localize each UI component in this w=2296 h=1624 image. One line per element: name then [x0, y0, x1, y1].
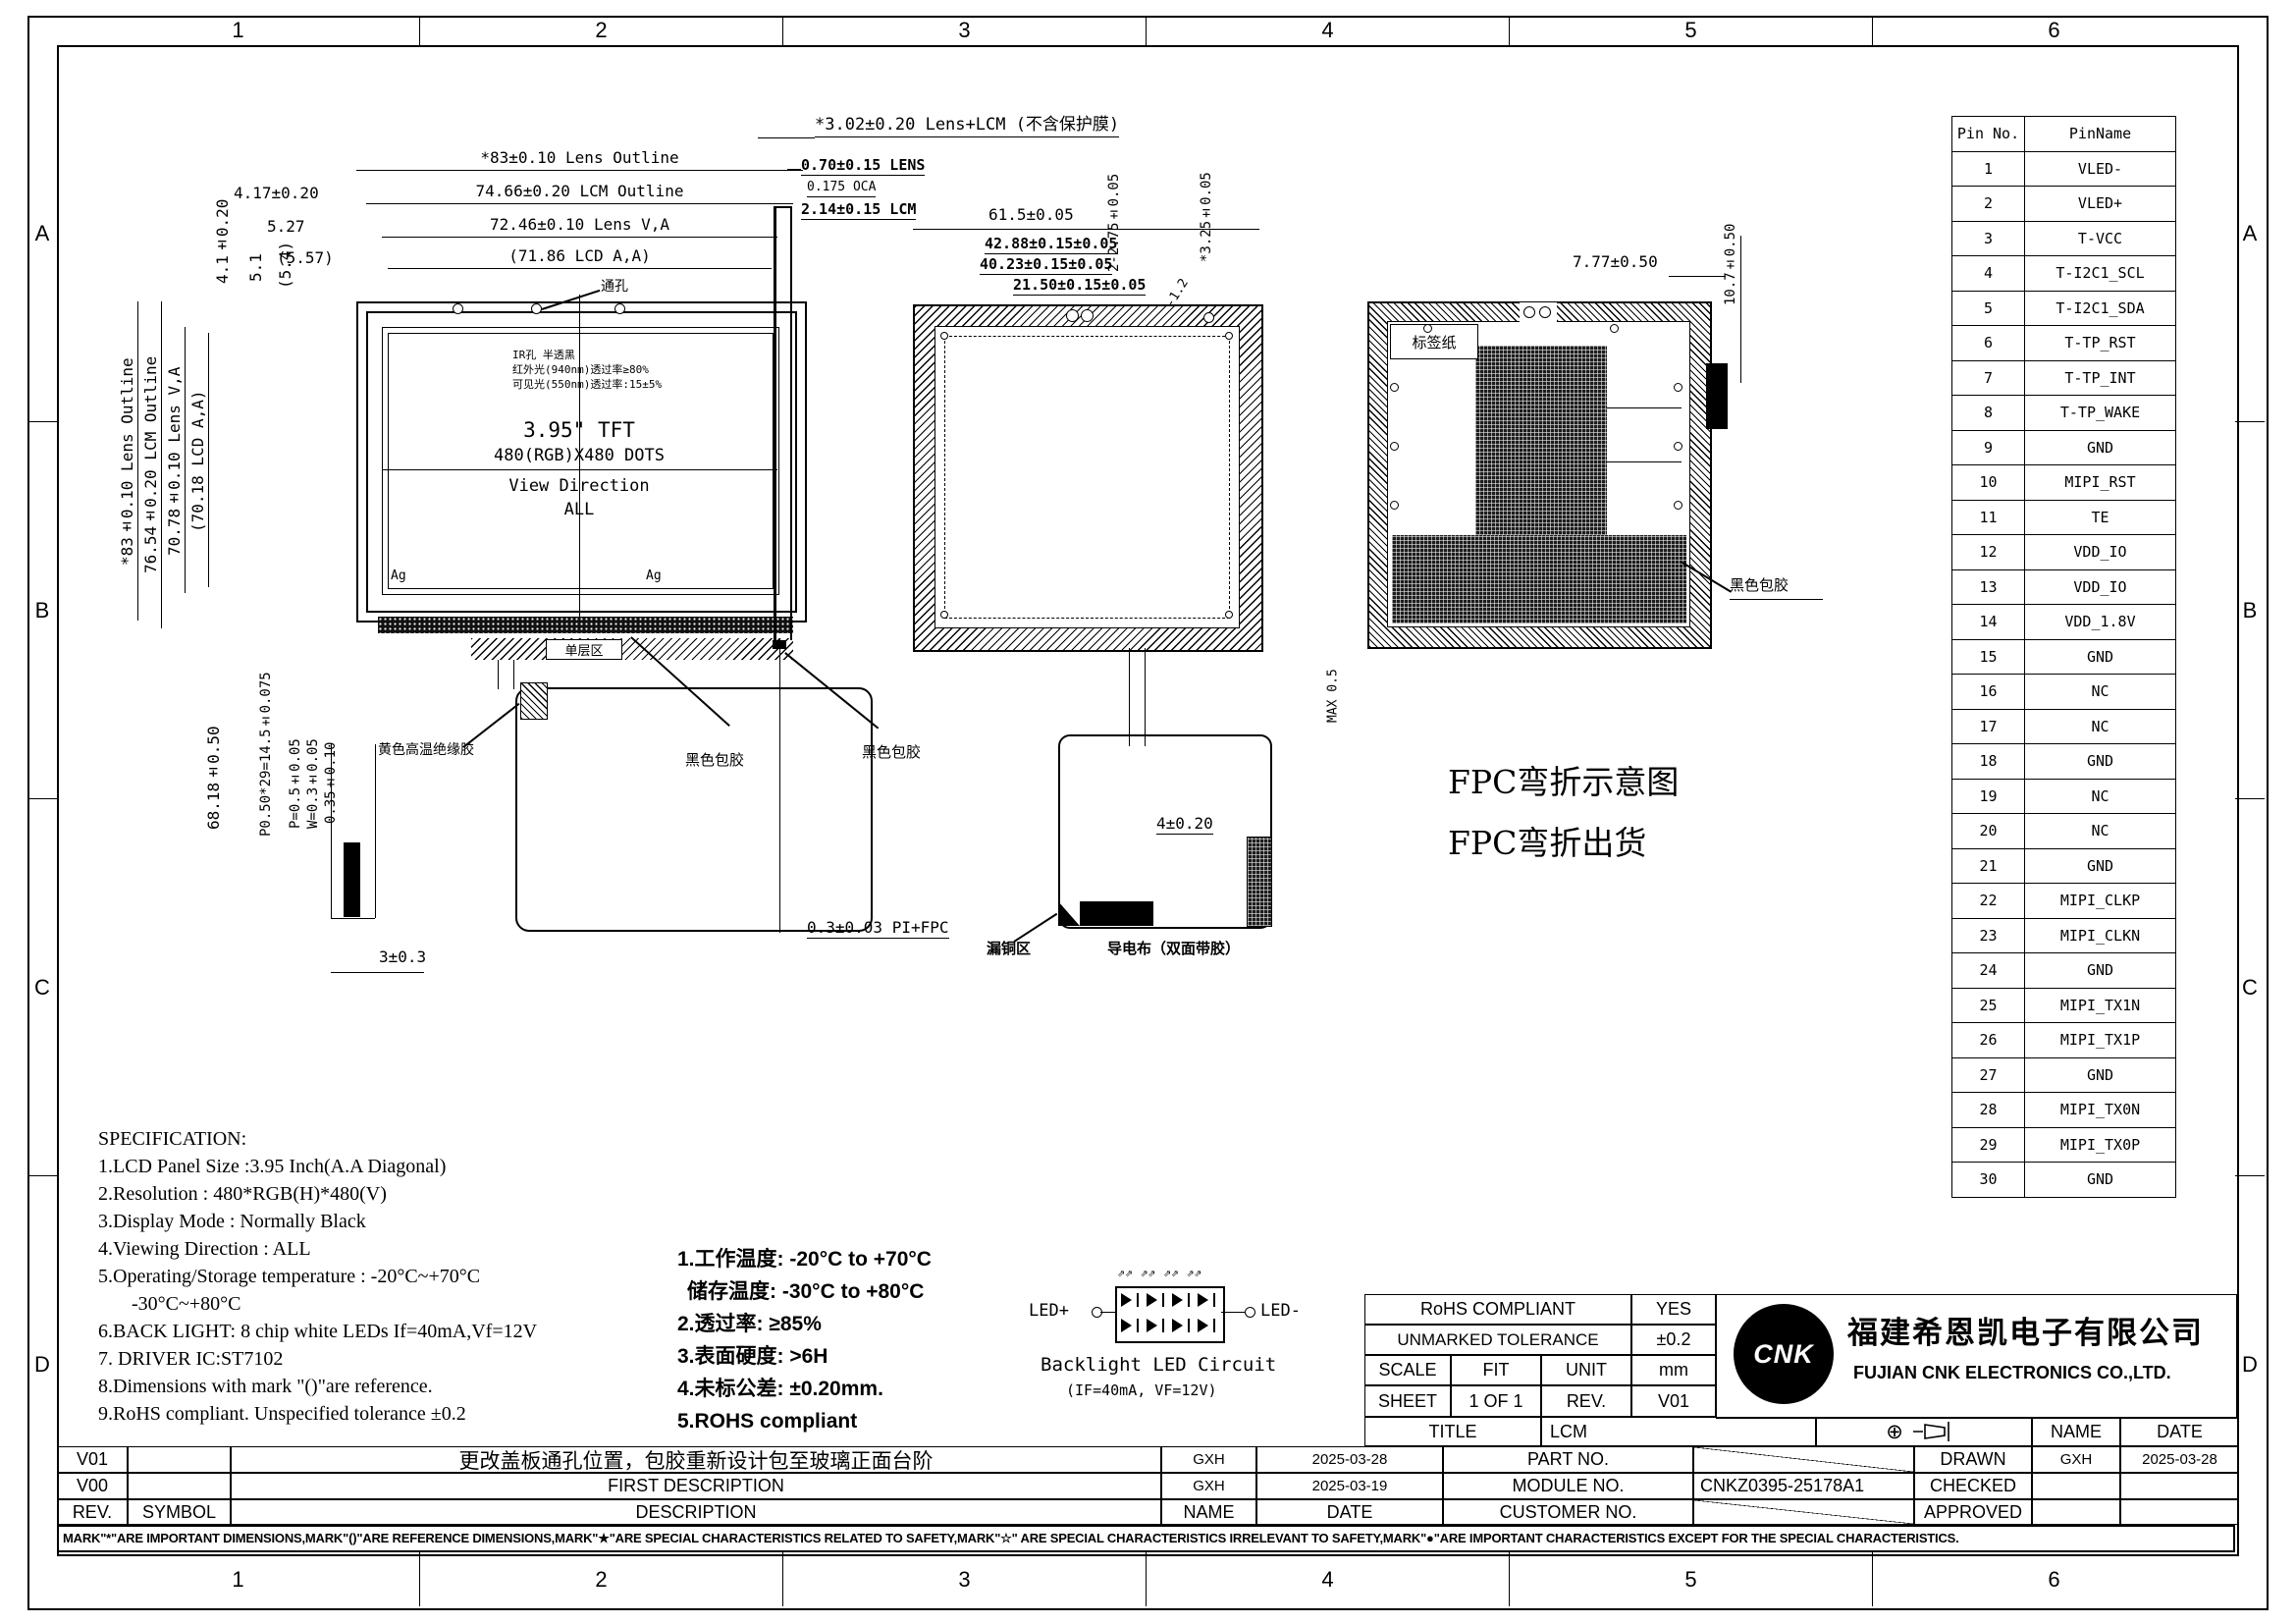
dim-p: P=0.5±0.05: [287, 729, 304, 839]
dim-line: [1669, 276, 1726, 277]
revision-row-v00: V00 FIRST DESCRIPTION GXH 2025-03-19 MOD…: [57, 1473, 2239, 1499]
dim-10-7: 10.7±0.50: [1722, 218, 1739, 311]
leader-line: [1730, 599, 1823, 600]
pin-row: 11TE: [1952, 500, 2176, 535]
pin-cell: MIPI_TX0P: [2025, 1127, 2176, 1163]
pin-row: 6T-TP_RST: [1952, 326, 2176, 361]
cover-adhesive-line: [944, 336, 1230, 619]
cover-dot: [1225, 611, 1233, 619]
side-section: [774, 206, 792, 640]
pin-cell: 2: [1952, 187, 2025, 222]
dim-3: 3±0.3: [379, 948, 426, 966]
dim-61-5: 61.5±0.05: [988, 206, 1074, 224]
pin-cell: T-TP_WAKE: [2025, 396, 2176, 431]
fpc-tail-edge: [1145, 648, 1146, 746]
led-diode-icon: [1172, 1293, 1183, 1307]
single-layer-label-box: 单层区: [546, 639, 622, 660]
dim-lens-outline-h: *83±0.10 Lens Outline: [356, 149, 803, 167]
date-header: DATE: [1256, 1499, 1443, 1525]
pin-row: 30GND: [1952, 1163, 2176, 1198]
rohs-value: YES: [1631, 1294, 1716, 1325]
led-emission-arrows-icon: ⇗⇗ ⇗⇗ ⇗⇗ ⇗⇗: [1117, 1267, 1201, 1281]
rev-date: 2025-03-19: [1256, 1473, 1443, 1499]
pin-row: 23MIPI_CLKN: [1952, 918, 2176, 953]
pin-cell: 18: [1952, 744, 2025, 780]
led-diode-bar: [1162, 1319, 1164, 1332]
zone-col: 1: [57, 1552, 419, 1606]
title-label: TITLE: [1364, 1417, 1541, 1446]
customer-no-value: [1693, 1499, 1914, 1525]
pin-cell: NC: [2025, 675, 2176, 710]
dim-lcm-outline-h: 74.66±0.20 LCM Outline: [366, 183, 793, 200]
dim-3-25: *3.25±0.05: [1198, 147, 1215, 287]
zone-col: 5: [1509, 1552, 1872, 1606]
back-dot: [1674, 501, 1682, 510]
back-dot: [1390, 501, 1399, 510]
rev-id: V00: [57, 1473, 128, 1499]
pin-cell: GND: [2025, 639, 2176, 675]
side-fpc-line: [779, 638, 780, 933]
specification-block: SPECIFICATION: 1.LCD Panel Size :3.95 In…: [98, 1125, 537, 1428]
sheet-label: SHEET: [1364, 1385, 1451, 1417]
single-layer-strip: [471, 638, 793, 660]
led-diode-icon: [1121, 1293, 1132, 1307]
zone-row: D: [2235, 1175, 2265, 1552]
pin-cell: 24: [1952, 953, 2025, 989]
spec-line: 5.Operating/Storage temperature : -20°C~…: [98, 1263, 537, 1290]
dim-line: [758, 137, 815, 138]
view-direction-text: View Direction: [432, 477, 726, 497]
pin-cell: 20: [1952, 814, 2025, 849]
dim-lcd-aa-v: (70.18 LCD A,A): [188, 368, 208, 555]
note-line: 1.工作温度: -20°C to +70°C: [677, 1243, 932, 1275]
rev-name: GXH: [1161, 1446, 1256, 1473]
fpc-stiffener-pad: [344, 842, 360, 917]
zone-col: 4: [1146, 1552, 1509, 1606]
pin-cell: 6: [1952, 326, 2025, 361]
drawing-sheet: 1 2 3 4 5 6 1 2 3 4 5 6 A B C D A B C D …: [0, 0, 2296, 1624]
led-diode-bar: [1188, 1319, 1190, 1332]
pin-cell: 22: [1952, 884, 2025, 919]
zone-row: C: [2235, 798, 2265, 1175]
zone-row: C: [27, 798, 57, 1175]
mount-hole: [531, 303, 542, 314]
rev-id: V01: [57, 1446, 128, 1473]
zone-row: B: [27, 421, 57, 798]
pin-table: Pin No. PinName 1VLED-2VLED+3T-VCC4T-I2C…: [1951, 116, 2176, 1198]
pin-cell: GND: [2025, 848, 2176, 884]
ag-label-right: Ag: [646, 569, 662, 584]
led-caption: Backlight LED Circuit: [1041, 1355, 1276, 1377]
checked-name: [2032, 1473, 2120, 1499]
panel-divider-line: [382, 469, 777, 470]
note-line: 5.ROHS compliant: [677, 1405, 932, 1437]
pin-table-header: Pin No. PinName: [1952, 117, 2176, 152]
dim-w: W=0.3±0.05: [304, 729, 322, 839]
module-no-value: CNKZ0395-25178A1: [1693, 1473, 1914, 1499]
led-diode-icon: [1121, 1319, 1132, 1332]
panel-size-text: 3.95" TFT: [432, 418, 726, 442]
cover-hole: [1066, 309, 1079, 322]
pin-cell: GND: [2025, 1163, 2176, 1198]
pin-row: 29MIPI_TX0P: [1952, 1127, 2176, 1163]
dim-lens-va-h: 72.46±0.10 Lens V,A: [382, 216, 777, 234]
ir-note-line1: IR孔 半透黑: [512, 350, 575, 362]
pin-row: 5T-I2C1_SDA: [1952, 291, 2176, 326]
pin-cell: GND: [2025, 953, 2176, 989]
dim-max-0-5: MAX 0.5: [1325, 668, 1343, 725]
fpc-bend-note-1: FPC弯折示意图: [1448, 764, 1679, 801]
dim-lens-thickness: 0.70±0.15 LENS: [801, 157, 925, 176]
pin-cell: 19: [1952, 779, 2025, 814]
dim-total-thickness: *3.02±0.20 Lens+LCM (不含保护膜): [815, 116, 1119, 137]
spec-line: 2.Resolution : 480*RGB(H)*480(V): [98, 1180, 537, 1208]
zone-col: 1: [57, 16, 419, 45]
ir-note-line3: 可见光(550nm)透过率:15±5%: [512, 379, 662, 392]
black-glue-label-back: 黑色包胶: [1730, 577, 1789, 594]
pin-row: 25MIPI_TX1N: [1952, 988, 2176, 1023]
fpc-connector-end: [1247, 837, 1272, 927]
note-line: 2.透过率: ≥85%: [677, 1308, 932, 1340]
dim-lcm-outline-v: 76.54±0.20 LCM Outline: [141, 352, 161, 577]
panel-res-text: 480(RGB)X480 DOTS: [432, 447, 726, 466]
pin-cell: NC: [2025, 709, 2176, 744]
zone-col: 2: [419, 16, 782, 45]
dim-line: [388, 268, 772, 269]
part-no-value: [1693, 1446, 1914, 1473]
pin-row: 9GND: [1952, 430, 2176, 465]
zone-row: B: [2235, 421, 2265, 798]
led-diode-bar: [1213, 1319, 1215, 1332]
pin-cell: MIPI_TX1N: [2025, 988, 2176, 1023]
dim-lcd-aa-h: (71.86 LCD A,A): [388, 247, 772, 265]
projection-symbol-icon: ⊕: [1886, 1420, 1903, 1444]
pin-row: 7T-TP_INT: [1952, 360, 2176, 396]
pin-cell: 8: [1952, 396, 2025, 431]
dim-pitch: P0.50*29=14.5±0.075: [257, 656, 275, 852]
cnk-logo-text: CNK: [1753, 1339, 1814, 1370]
pin-cell: 23: [1952, 918, 2025, 953]
label-paper-text: 标签纸: [1412, 332, 1456, 352]
pin-cell: 7: [1952, 360, 2025, 396]
pin-row: 21GND: [1952, 848, 2176, 884]
cover-hole: [1203, 312, 1214, 323]
dim-21-50: 21.50±0.15±0.05: [1013, 277, 1146, 296]
zone-col: 6: [1872, 1552, 2235, 1606]
pin-row: 17NC: [1952, 709, 2176, 744]
cover-hole: [1081, 309, 1094, 322]
pin-cell: 9: [1952, 430, 2025, 465]
fpc-tail-bottom: [331, 918, 375, 919]
pin-cell: MIPI_CLKN: [2025, 918, 2176, 953]
conductive-cloth-pad: [1080, 901, 1153, 926]
led-terminal: [1245, 1307, 1255, 1318]
ag-label-left: Ag: [391, 569, 406, 584]
approved-label: APPROVED: [1914, 1499, 2032, 1525]
rev-header: REV.: [57, 1499, 128, 1525]
conductive-cloth-label: 导电布（双面带胶）: [1107, 941, 1240, 957]
revision-row-v01: V01 更改盖板通孔位置，包胶重新设计包至玻璃正面台阶 GXH 2025-03-…: [57, 1446, 2239, 1473]
pin-row: 28MIPI_TX0N: [1952, 1093, 2176, 1128]
exposed-copper-area: [1058, 901, 1080, 926]
back-hole: [1539, 306, 1551, 318]
disclaimer-band: MARK"*"ARE IMPORTANT DIMENSIONS,MARK"()"…: [57, 1525, 2235, 1552]
black-glue-label-side: 黑色包胶: [862, 744, 921, 761]
rohs-label: RoHS COMPLIANT: [1364, 1294, 1631, 1325]
rev-name: GXH: [1161, 1473, 1256, 1499]
led-row: [1117, 1317, 1219, 1334]
pin-row: 3T-VCC: [1952, 221, 2176, 256]
pin-row: 24GND: [1952, 953, 2176, 989]
pin-cell: VDD_IO: [2025, 535, 2176, 570]
dim-line: [366, 203, 793, 204]
rev-description: 更改盖板通孔位置，包胶重新设计包至玻璃正面台阶: [231, 1446, 1161, 1473]
drawn-name: GXH: [2032, 1446, 2120, 1473]
note-line: 4.未标公差: ±0.20mm.: [677, 1373, 932, 1405]
pin-row: 22MIPI_CLKP: [1952, 884, 2176, 919]
part-no-label: PART NO.: [1443, 1446, 1693, 1473]
unit-value: mm: [1631, 1355, 1716, 1385]
led-wire: [1221, 1312, 1245, 1313]
dim-5-1: 5.1: [247, 244, 265, 293]
label-paper-box: 标签纸: [1390, 324, 1478, 359]
back-fpc-tab: [1706, 363, 1728, 429]
name-header: NAME: [1161, 1499, 1256, 1525]
ir-note-line2: 红外光(940nm)透过率≥80%: [512, 364, 649, 377]
disclaimer-text: MARK"*"ARE IMPORTANT DIMENSIONS,MARK"()"…: [59, 1531, 1959, 1546]
spec-line: 3.Display Mode : Normally Black: [98, 1208, 537, 1235]
pin-cell: TE: [2025, 500, 2176, 535]
led-plus-label: LED+: [1029, 1302, 1069, 1322]
led-diode-icon: [1147, 1293, 1157, 1307]
pin-row: 2VLED+: [1952, 187, 2176, 222]
rohs-row: RoHS COMPLIANT YES: [1364, 1294, 1716, 1325]
dim-4: 4±0.20: [1156, 815, 1213, 835]
zone-col: 4: [1146, 16, 1509, 45]
pin-row: 16NC: [1952, 675, 2176, 710]
led-row: [1117, 1291, 1219, 1309]
pin-cell: NC: [2025, 779, 2176, 814]
pin-cell: 5: [1952, 291, 2025, 326]
exposed-copper-label: 漏铜区: [987, 941, 1031, 957]
cover-dot: [1225, 332, 1233, 340]
approved-date: [2120, 1499, 2239, 1525]
dim-5-4: (5.4): [277, 234, 294, 297]
pin-cell: 27: [1952, 1057, 2025, 1093]
pin-cell: 13: [1952, 569, 2025, 605]
zone-col: 6: [1872, 16, 2235, 45]
pin-cell: 4: [1952, 256, 2025, 292]
pin-row: 26MIPI_TX1P: [1952, 1023, 2176, 1058]
rev-label: REV.: [1541, 1385, 1631, 1417]
mount-hole: [614, 303, 625, 314]
pin-cell: VLED+: [2025, 187, 2176, 222]
pin-cell: VLED-: [2025, 151, 2176, 187]
title-value: LCM: [1541, 1417, 1816, 1446]
fpc-edge: [513, 660, 514, 689]
title-row: TITLE LCM ⊕ NAME DATE: [1364, 1417, 2239, 1446]
pin-row: 4T-I2C1_SCL: [1952, 256, 2176, 292]
rev-symbol: [128, 1446, 231, 1473]
checked-date: [2120, 1473, 2239, 1499]
led-diode-icon: [1147, 1319, 1157, 1332]
pin-cell: T-I2C1_SDA: [2025, 291, 2176, 326]
sheet-rev-row: SHEET 1 OF 1 REV. V01: [1364, 1385, 1716, 1417]
dim-4-17: 4.17±0.20: [234, 185, 319, 202]
pin-row: 10MIPI_RST: [1952, 465, 2176, 501]
back-dot: [1423, 324, 1432, 333]
dim-4-1: 4.1±0.20: [214, 192, 232, 291]
pin-cell: GND: [2025, 430, 2176, 465]
back-dot: [1610, 324, 1619, 333]
zone-band-left: A B C D: [27, 45, 57, 1552]
spec-line: 4.Viewing Direction : ALL: [98, 1235, 537, 1263]
mount-hole: [453, 303, 463, 314]
drawn-label: DRAWN: [1914, 1446, 2032, 1473]
zone-row: D: [27, 1175, 57, 1552]
pin-row: 19NC: [1952, 779, 2176, 814]
led-minus-label: LED-: [1260, 1302, 1301, 1322]
back-dot: [1674, 383, 1682, 392]
dim-7-77: 7.77±0.50: [1573, 253, 1658, 271]
dim-2-2-75: 2-2.75±0.05: [1105, 155, 1123, 291]
dim-line: [185, 327, 186, 593]
pin-cell: GND: [2025, 1057, 2176, 1093]
projection-symbol-cell: ⊕: [1816, 1417, 2032, 1446]
zone-band-right: A B C D: [2235, 45, 2265, 1552]
company-name-cn: 福建希恩凯电子有限公司: [1847, 1316, 2204, 1351]
pin-cell: 16: [1952, 675, 2025, 710]
dim-line: [208, 333, 209, 587]
dim-line: [1740, 236, 1741, 383]
tolerance-value: ±0.2: [1631, 1325, 1716, 1355]
pin-cell: GND: [2025, 744, 2176, 780]
pin-row: 1VLED-: [1952, 151, 2176, 187]
led-diode-icon: [1172, 1319, 1183, 1332]
pin-row: 18GND: [1952, 744, 2176, 780]
pin-cell: NC: [2025, 814, 2176, 849]
led-diode-bar: [1137, 1293, 1139, 1307]
scale-unit-row: SCALE FIT UNIT mm: [1364, 1355, 1716, 1385]
revision-header-row: REV. SYMBOL DESCRIPTION NAME DATE CUSTOM…: [57, 1499, 2239, 1525]
spec-line: 8.Dimensions with mark "()"are reference…: [98, 1373, 537, 1400]
back-divider: [1607, 461, 1682, 462]
drawn-date: 2025-03-28: [2120, 1446, 2239, 1473]
dim-line: [161, 301, 162, 628]
leader-line: [787, 169, 801, 170]
checked-label: CHECKED: [1914, 1473, 2032, 1499]
dim-lcm-thickness: 2.14±0.15 LCM: [801, 201, 916, 220]
dim-fpc-height: 68.18±0.50: [204, 722, 224, 835]
led-diode-bar: [1188, 1293, 1190, 1307]
side-glue-block: [773, 640, 786, 649]
unit-label: UNIT: [1541, 1355, 1631, 1385]
pin-no-header: Pin No.: [1952, 117, 2025, 152]
fpc-tail-edge: [375, 744, 376, 918]
cover-dot: [940, 611, 948, 619]
pin-cell: 17: [1952, 709, 2025, 744]
dim-lens-outline-v: *83±0.10 Lens Outline: [118, 339, 137, 584]
black-glue-label-front: 黑色包胶: [685, 752, 744, 769]
yellow-tape-label: 黄色高温绝缘胶: [378, 742, 474, 758]
dim-lens-va-v: 70.78±0.10 Lens V,A: [165, 363, 185, 560]
led-diode-bar: [1162, 1293, 1164, 1307]
dim-42-88: 42.88±0.15±0.05: [985, 236, 1117, 254]
zone-col: 3: [782, 16, 1146, 45]
pin-name-header: PinName: [2025, 117, 2176, 152]
tolerance-label: UNMARKED TOLERANCE: [1364, 1325, 1631, 1355]
rev-description: FIRST DESCRIPTION: [231, 1473, 1161, 1499]
fpc-edge: [498, 660, 499, 689]
pin-row: 15GND: [1952, 639, 2176, 675]
led-subcaption: (IF=40mA, VF=12V): [1066, 1382, 1217, 1399]
pin-cell: MIPI_RST: [2025, 465, 2176, 501]
through-hole-label: 通孔: [601, 279, 628, 295]
view-direction-all: ALL: [432, 501, 726, 520]
pin-cell: T-VCC: [2025, 221, 2176, 256]
scale-value: FIT: [1451, 1355, 1541, 1385]
pin-cell: 14: [1952, 605, 2025, 640]
back-dot: [1674, 442, 1682, 451]
back-mesh-column: [1475, 346, 1607, 535]
symbol-header: SYMBOL: [128, 1499, 231, 1525]
pin-cell: 29: [1952, 1127, 2025, 1163]
dim-pi-fpc: 0.3±0.03 PI+FPC: [807, 919, 949, 939]
led-diode-icon: [1198, 1319, 1208, 1332]
scale-label: SCALE: [1364, 1355, 1451, 1385]
pin-row: 12VDD_IO: [1952, 535, 2176, 570]
pin-cell: 25: [1952, 988, 2025, 1023]
pin-cell: 12: [1952, 535, 2025, 570]
pin-cell: MIPI_CLKP: [2025, 884, 2176, 919]
sheet-value: 1 OF 1: [1451, 1385, 1541, 1417]
note-line: 3.表面硬度: >6H: [677, 1340, 932, 1373]
name-header: NAME: [2032, 1417, 2120, 1446]
pin-cell: MIPI_TX0N: [2025, 1093, 2176, 1128]
zone-col: 5: [1509, 16, 1872, 45]
dim-t: 0.35±0.10: [322, 725, 340, 840]
company-name-en: FUJIAN CNK ELECTRONICS CO.,LTD.: [1853, 1363, 2171, 1383]
pin-cell: 10: [1952, 465, 2025, 501]
spec-line: 7. DRIVER IC:ST7102: [98, 1345, 537, 1373]
module-no-label: MODULE NO.: [1443, 1473, 1693, 1499]
spec-title: SPECIFICATION:: [98, 1125, 537, 1153]
pin-cell: 30: [1952, 1163, 2025, 1198]
zone-row: A: [27, 45, 57, 421]
pin-cell: 15: [1952, 639, 2025, 675]
pin-cell: 11: [1952, 500, 2025, 535]
insulation-tape-block: [520, 682, 548, 720]
dim-line: [137, 301, 138, 621]
pin-cell: 3: [1952, 221, 2025, 256]
spec-line: 6.BACK LIGHT: 8 chip white LEDs If=40mA,…: [98, 1318, 537, 1345]
rev-date: 2025-03-28: [1256, 1446, 1443, 1473]
zone-col: 2: [419, 1552, 782, 1606]
back-divider: [1607, 407, 1682, 408]
rev-value: V01: [1631, 1385, 1716, 1417]
dim-line: [382, 237, 777, 238]
back-hole: [1523, 306, 1535, 318]
back-mesh-band: [1392, 535, 1686, 623]
pin-cell: T-I2C1_SCL: [2025, 256, 2176, 292]
led-wire: [1100, 1312, 1115, 1313]
pin-cell: 1: [1952, 151, 2025, 187]
back-dot: [1390, 383, 1399, 392]
customer-no-label: CUSTOMER NO.: [1443, 1499, 1693, 1525]
approved-name: [2032, 1499, 2120, 1525]
led-diode-bar: [1137, 1319, 1139, 1332]
spec-line: 1.LCD Panel Size :3.95 Inch(A.A Diagonal…: [98, 1153, 537, 1180]
